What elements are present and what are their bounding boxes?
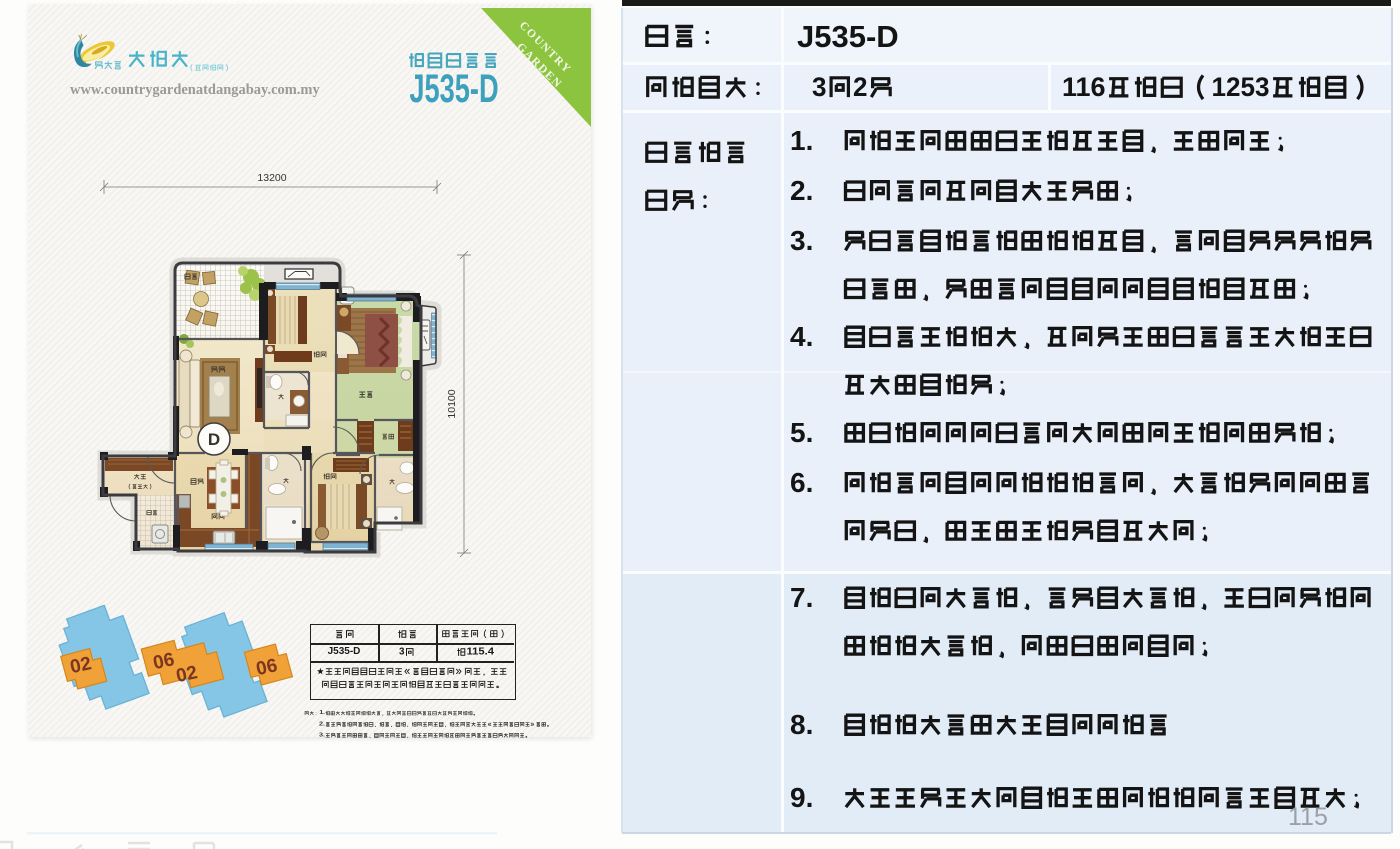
svg-text:06: 06	[151, 649, 176, 674]
svg-text:1.: 1.	[319, 710, 325, 716]
svg-text:3.: 3.	[319, 732, 326, 738]
svg-text:2: 2	[853, 72, 868, 102]
svg-text:02: 02	[68, 653, 93, 678]
svg-text:10100: 10100	[446, 389, 458, 418]
svg-text:3: 3	[812, 72, 827, 102]
svg-text:D: D	[208, 430, 220, 449]
svg-text:13200: 13200	[257, 172, 286, 184]
svg-text:115.4: 115.4	[467, 646, 494, 657]
svg-text:02: 02	[174, 662, 199, 687]
svg-text:116: 116	[1062, 72, 1106, 102]
svg-text:06: 06	[254, 655, 279, 680]
svg-text:3: 3	[399, 646, 405, 657]
svg-text:1253: 1253	[1212, 72, 1270, 102]
svg-text:2.: 2.	[319, 721, 326, 727]
